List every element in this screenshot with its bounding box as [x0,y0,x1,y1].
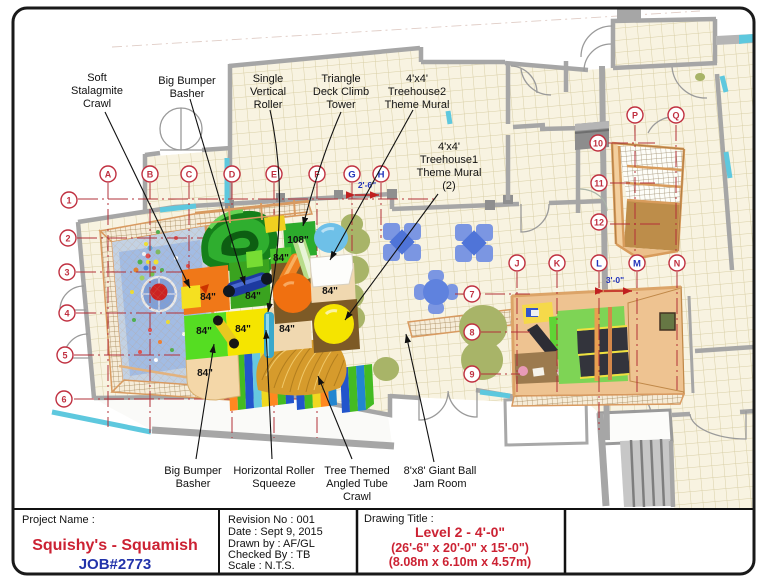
svg-text:Angled Tube: Angled Tube [326,478,388,490]
svg-text:Scale : N.T.S.: Scale : N.T.S. [228,560,295,572]
svg-text:Triangle: Triangle [321,73,360,85]
svg-text:8: 8 [469,328,474,338]
svg-text:Big Bumper: Big Bumper [164,465,222,477]
svg-text:Treehouse2: Treehouse2 [388,86,446,98]
svg-text:Treehouse1: Treehouse1 [420,154,478,166]
svg-text:6: 6 [61,395,66,405]
svg-text:G: G [348,170,355,181]
svg-text:4'x4': 4'x4' [406,73,428,85]
svg-text:Basher: Basher [170,88,205,100]
svg-text:(8.08m x 6.10m x 4.57m): (8.08m x 6.10m x 4.57m) [389,555,531,569]
svg-text:7: 7 [469,290,474,300]
svg-text:Tree Themed: Tree Themed [324,465,389,477]
svg-text:E: E [271,170,277,180]
svg-text:Soft: Soft [87,72,107,84]
svg-text:5: 5 [62,351,67,361]
svg-text:84": 84" [200,292,216,303]
svg-text:M: M [633,259,641,270]
svg-text:B: B [147,170,154,180]
svg-text:9: 9 [469,370,474,380]
svg-text:2: 2 [65,234,70,244]
svg-text:Level 2 - 4'-0": Level 2 - 4'-0" [415,524,505,540]
svg-text:Single: Single [253,73,284,85]
svg-text:Q: Q [672,111,679,121]
svg-text:84": 84" [235,324,251,335]
svg-text:Basher: Basher [176,478,211,490]
svg-text:Horizontal Roller: Horizontal Roller [233,465,315,477]
svg-text:K: K [554,259,561,269]
svg-text:L: L [596,259,602,270]
svg-text:Date : Sept 9, 2015: Date : Sept 9, 2015 [228,526,323,538]
svg-text:Theme Mural: Theme Mural [385,99,450,111]
svg-text:Roller: Roller [254,99,283,111]
svg-text:P: P [632,111,638,121]
svg-text:108": 108" [287,235,309,246]
svg-text:Stalagmite: Stalagmite [71,85,123,97]
svg-text:11: 11 [594,179,604,189]
svg-text:Squishy's - Squamish: Squishy's - Squamish [32,537,198,554]
svg-text:Revision No : 001: Revision No : 001 [228,514,315,526]
svg-text:4'x4': 4'x4' [438,141,460,153]
svg-text:3: 3 [64,268,69,278]
svg-text:3'-0": 3'-0" [606,275,624,285]
svg-text:84": 84" [196,326,212,337]
svg-text:J: J [514,259,519,269]
svg-text:Squeeze: Squeeze [252,478,295,490]
svg-text:Big Bumper: Big Bumper [158,75,216,87]
svg-text:10: 10 [593,139,603,149]
svg-text:N: N [674,259,681,269]
svg-text:Jam Room: Jam Room [413,478,466,490]
svg-text:84": 84" [279,324,295,335]
svg-text:Vertical: Vertical [250,86,286,98]
svg-text:Project Name :: Project Name : [22,514,95,526]
svg-text:Theme Mural: Theme Mural [417,167,482,179]
svg-text:(26'-6" x 20'-0" x 15'-0"): (26'-6" x 20'-0" x 15'-0") [391,541,529,555]
svg-text:A: A [105,170,112,180]
svg-text:(2): (2) [442,180,455,192]
svg-text:Deck Climb: Deck Climb [313,86,369,98]
svg-text:1: 1 [66,196,71,206]
svg-text:84": 84" [322,286,338,297]
svg-text:D: D [229,170,236,180]
svg-text:8'x8' Giant Ball: 8'x8' Giant Ball [404,465,477,477]
svg-text:C: C [186,170,193,180]
svg-text:Crawl: Crawl [343,491,371,503]
svg-text:Tower: Tower [326,99,356,111]
svg-text:84": 84" [245,291,261,302]
svg-text:12: 12 [594,218,604,228]
svg-text:4: 4 [64,309,69,319]
svg-text:JOB#2773: JOB#2773 [79,556,152,573]
svg-text:Crawl: Crawl [83,98,111,110]
svg-text:84": 84" [197,368,213,379]
